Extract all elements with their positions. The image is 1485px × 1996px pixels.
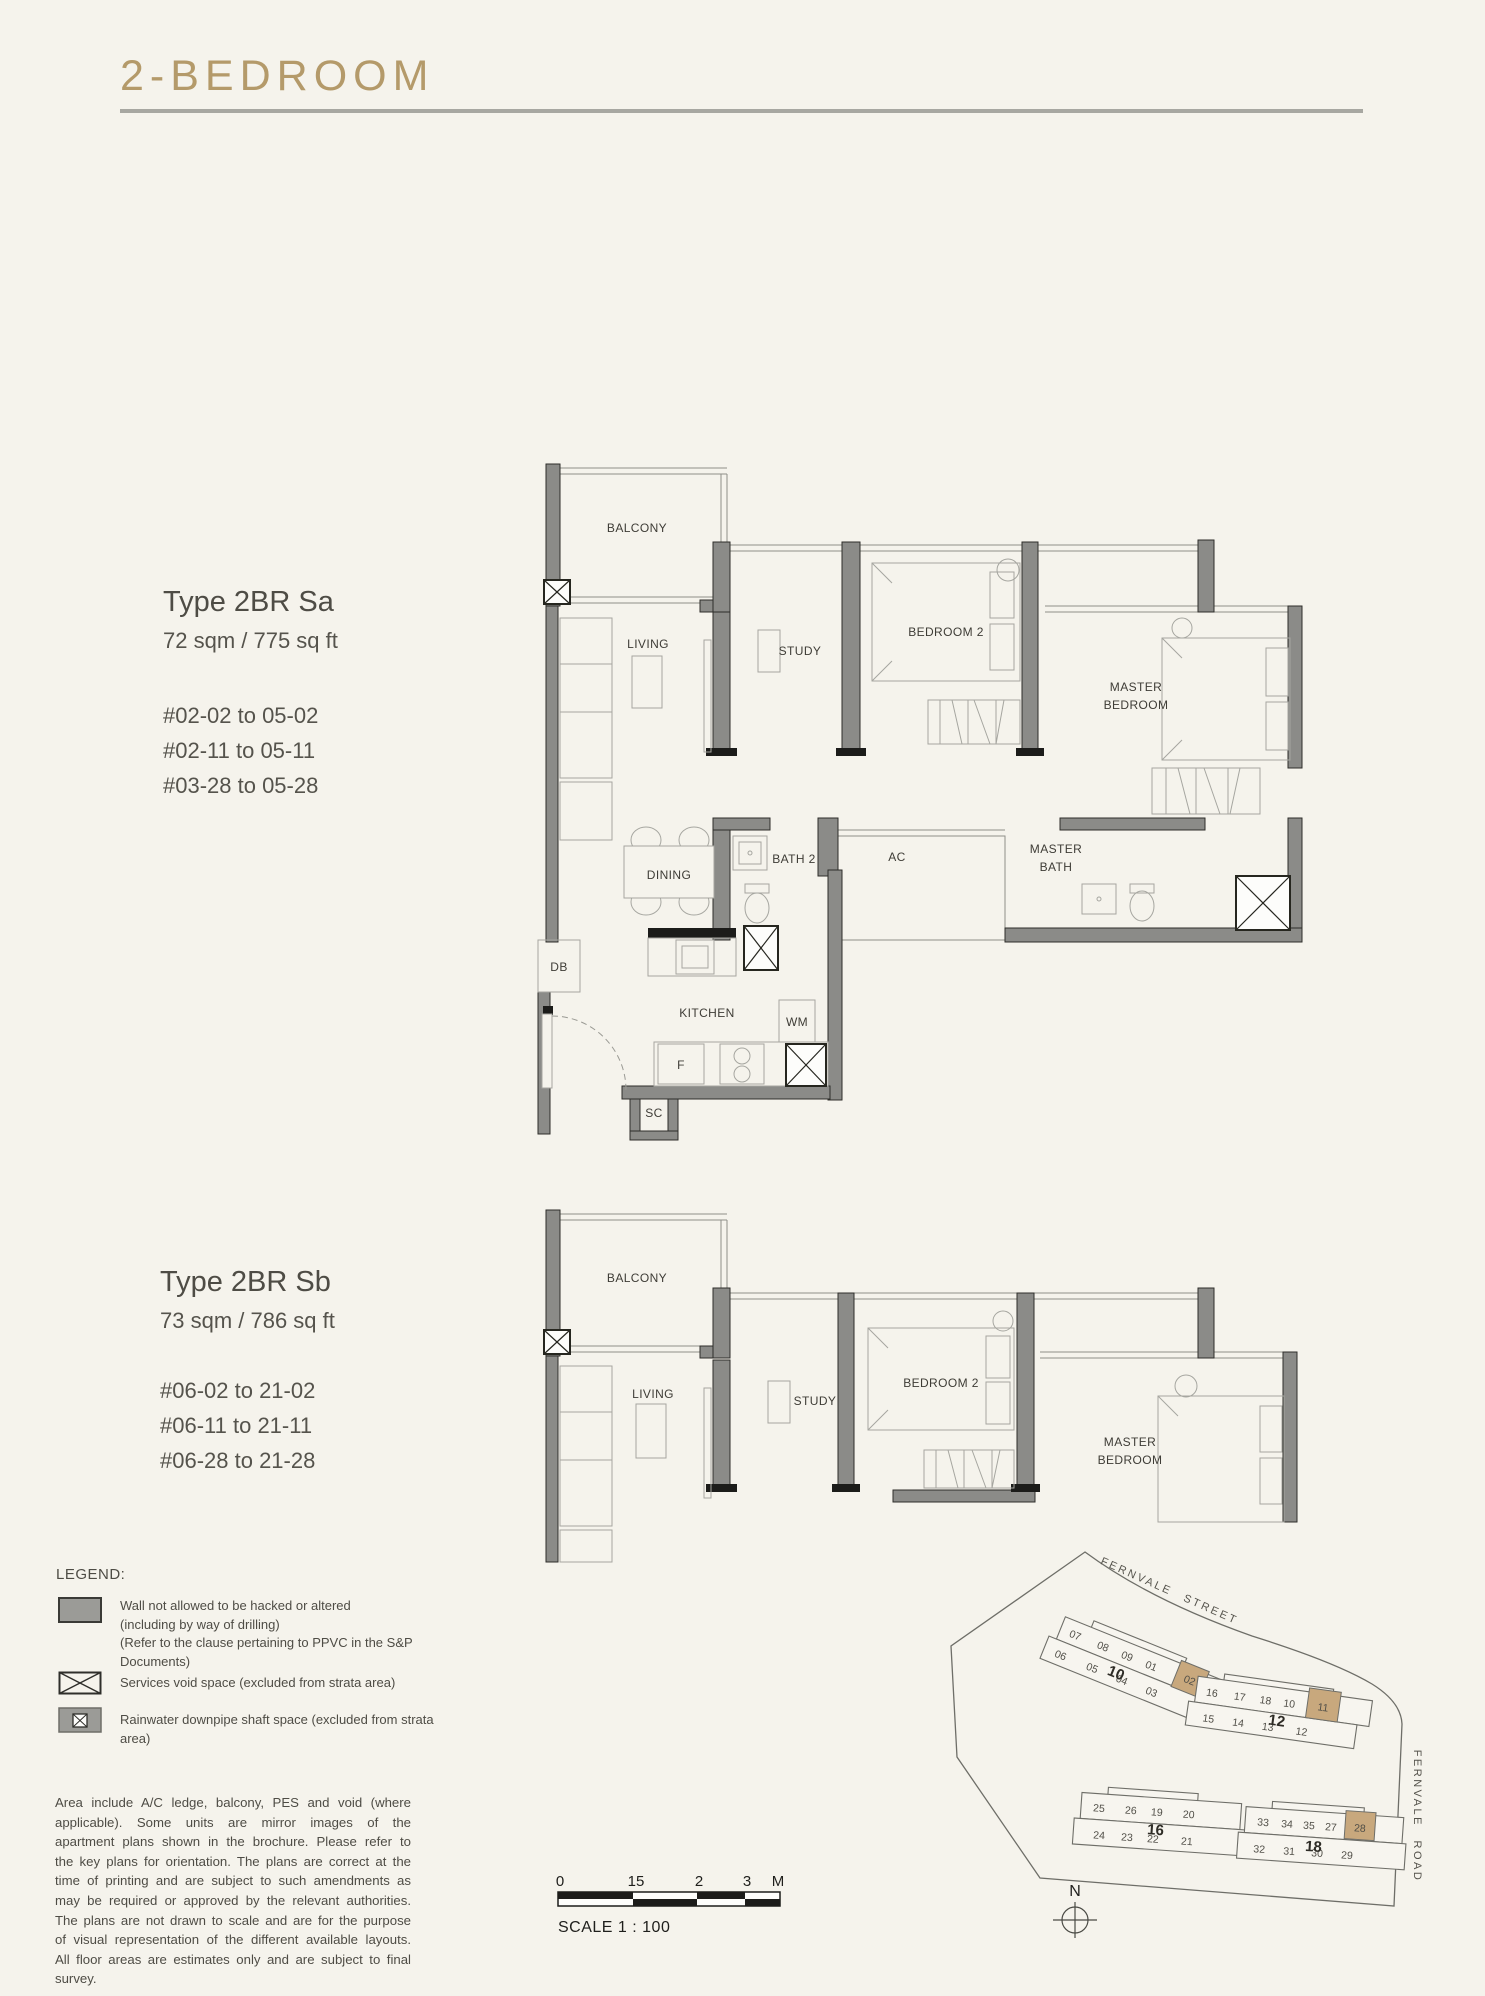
room-label-dining: DINING: [647, 868, 691, 882]
study-desk: [768, 1381, 790, 1423]
block-number: 16: [1147, 1821, 1165, 1839]
stack-number: 27: [1325, 1821, 1338, 1834]
site-block-18: 33 34 35 27 28 32 31 30 29 18: [1237, 1799, 1409, 1870]
room-label-study: STUDY: [794, 1394, 837, 1408]
stack-number: 29: [1341, 1849, 1354, 1862]
master-fan: [1172, 618, 1192, 638]
wall-swatch: [58, 1597, 104, 1623]
legend-heading: LEGEND:: [56, 1566, 125, 1583]
scale-bar: 0 15 2 3 M SCALE 1 : 100: [540, 1862, 800, 1942]
block-number: 12: [1267, 1712, 1286, 1731]
void-master-bath: [1236, 876, 1290, 930]
street-label: FERNVALE STREET: [1099, 1555, 1240, 1627]
bedroom2-wardrobe: [924, 1450, 1014, 1488]
title-rule: [120, 109, 1363, 113]
unit-range: #02-02 to 05-02: [163, 698, 318, 733]
type-sb-name: Type 2BR Sb: [160, 1266, 335, 1299]
plan-sb-furniture: [560, 1311, 1284, 1562]
floorplan-type-sb: BALCONY LIVING STUDY BEDROOM 2 MASTER BE…: [430, 1190, 1330, 1570]
room-label-master-bedroom: BEDROOM: [1104, 698, 1169, 712]
room-label-wm: WM: [786, 1015, 808, 1029]
legend-wall-line3: (Refer to the clause pertaining to PPVC …: [120, 1634, 458, 1671]
type-sb-info: Type 2BR Sb 73 sqm / 786 sq ft: [160, 1266, 335, 1334]
stack-number: 23: [1121, 1831, 1134, 1844]
bath2-fixtures: [733, 836, 769, 923]
stack-number: 28: [1354, 1822, 1367, 1835]
type-sa-area: 72 sqm / 775 sq ft: [163, 628, 338, 654]
void-kitchen-top: [744, 926, 778, 970]
stack-number: 19: [1151, 1806, 1164, 1819]
block-number: 18: [1305, 1838, 1323, 1856]
study-desk: [758, 630, 780, 672]
rainwater-swatch: [58, 1707, 104, 1738]
master-wardrobe: [1152, 768, 1260, 814]
coffee-table: [636, 1404, 666, 1458]
room-label-sc: SC: [645, 1106, 662, 1120]
scale-tick: 3: [743, 1873, 751, 1890]
room-label-ac: AC: [888, 850, 905, 864]
scale-tick: 2: [695, 1873, 703, 1890]
stack-number: 18: [1259, 1694, 1272, 1708]
unit-range: #06-28 to 21-28: [160, 1443, 315, 1478]
scale-unit: M: [772, 1873, 785, 1890]
coffee-table: [632, 656, 662, 708]
bedroom2-bed: [872, 563, 1020, 681]
master-bed: [1162, 638, 1290, 760]
north-label: N: [1069, 1883, 1081, 1900]
type-sb-area: 73 sqm / 786 sq ft: [160, 1308, 335, 1334]
legend-wall-line1: Wall not allowed to be hacked or altered: [120, 1597, 458, 1616]
site-block-12: 16 17 18 10 11 15 14 13 12 12: [1185, 1669, 1373, 1750]
plan-sa-walls: [538, 464, 1302, 1140]
stack-number: 11: [1317, 1701, 1330, 1714]
room-label-balcony: BALCONY: [607, 1271, 667, 1285]
floorplan-type-sa: BALCONY LIVING STUDY BEDROOM 2 MASTER BE…: [430, 440, 1330, 1150]
scale-ticks: 0 15 2 3 M: [556, 1873, 784, 1890]
type-sa-info: Type 2BR Sa 72 sqm / 775 sq ft: [163, 586, 338, 654]
stack-number: 16: [1205, 1687, 1218, 1701]
master-bath-fixtures: [1082, 884, 1154, 921]
room-label-kitchen: KITCHEN: [679, 1006, 734, 1020]
room-label-master-bedroom: BEDROOM: [1098, 1453, 1163, 1467]
unit-range: #06-11 to 21-11: [160, 1408, 315, 1443]
stack-number: 31: [1283, 1845, 1296, 1858]
stack-number: 26: [1125, 1805, 1138, 1818]
stack-number: 12: [1295, 1725, 1308, 1739]
room-label-master-bedroom: MASTER: [1110, 680, 1162, 694]
master-fan: [1175, 1375, 1197, 1397]
stack-number: 21: [1181, 1836, 1194, 1849]
room-label-master-bedroom: MASTER: [1104, 1435, 1156, 1449]
legend-rainwater-text: Rainwater downpipe shaft space (excluded…: [120, 1707, 458, 1748]
bedroom2-wardrobe: [928, 700, 1020, 744]
scale-label: SCALE 1 : 100: [558, 1919, 670, 1936]
stack-number: 35: [1303, 1820, 1316, 1833]
room-label-bath2: BATH 2: [772, 852, 816, 866]
gray-crossed-box-icon: [58, 1707, 102, 1733]
site-key-plan: FERNVALE STREET FERNVALE ROAD 07 08 09 0…: [930, 1548, 1485, 1993]
room-label-living: LIVING: [632, 1387, 674, 1401]
stack-number: 25: [1093, 1802, 1106, 1815]
plan-sb-windows: [546, 1214, 1296, 1520]
void-balcony: [544, 580, 570, 604]
type-sa-units: #02-02 to 05-02 #02-11 to 05-11 #03-28 t…: [163, 698, 318, 803]
stack-number: 20: [1182, 1809, 1195, 1822]
room-label-living: LIVING: [627, 637, 669, 651]
stack-number: 10: [1283, 1697, 1296, 1711]
type-sb-units: #06-02 to 21-02 #06-11 to 21-11 #06-28 t…: [160, 1373, 315, 1478]
room-label-db: DB: [550, 960, 567, 974]
scale-bar-graphic: [558, 1892, 780, 1906]
stack-number: 24: [1093, 1829, 1106, 1842]
stack-number: 14: [1231, 1717, 1244, 1731]
scale-tick: 15: [628, 1873, 645, 1890]
services-void-swatch: [58, 1671, 104, 1700]
master-bed: [1158, 1396, 1284, 1522]
brochure-page: 2-BEDROOM Type 2BR Sa 72 sqm / 775 sq ft…: [0, 0, 1485, 1996]
stack-number: 17: [1233, 1690, 1246, 1704]
plan-sb-service-voids: [544, 1330, 570, 1354]
unit-range: #03-28 to 05-28: [163, 768, 318, 803]
entry-door: [542, 1014, 626, 1090]
room-label-bedroom2: BEDROOM 2: [903, 1376, 979, 1390]
legend-wall-line2: (including by way of drilling): [120, 1616, 458, 1635]
stack-number: 33: [1257, 1816, 1270, 1829]
unit-range: #02-11 to 05-11: [163, 733, 318, 768]
page-title: 2-BEDROOM: [120, 52, 434, 101]
disclaimer-text: Area include A/C ledge, balcony, PES and…: [55, 1793, 411, 1989]
unit-range: #06-02 to 21-02: [160, 1373, 315, 1408]
stack-number: 32: [1253, 1843, 1266, 1856]
room-label-master-bath: BATH: [1040, 860, 1073, 874]
void-balcony: [544, 1330, 570, 1354]
tv-console: [704, 640, 711, 752]
room-label-fridge: F: [677, 1058, 685, 1072]
void-kitchen-bottom: [786, 1044, 826, 1086]
bedroom2-fan: [997, 559, 1019, 581]
room-label-balcony: BALCONY: [607, 521, 667, 535]
room-label-bedroom2: BEDROOM 2: [908, 625, 984, 639]
sofa: [560, 1366, 612, 1562]
legend-item-rainwater: Rainwater downpipe shaft space (excluded…: [58, 1707, 458, 1748]
stack-number: 34: [1281, 1818, 1294, 1831]
legend-item-wall: Wall not allowed to be hacked or altered…: [58, 1597, 458, 1671]
legend-services-void-text: Services void space (excluded from strat…: [120, 1671, 395, 1693]
site-block-16: 25 26 19 20 24 23 22 21 16: [1072, 1785, 1248, 1856]
room-label-master-bath: MASTER: [1030, 842, 1082, 856]
room-label-study: STUDY: [779, 644, 822, 658]
sofa: [560, 618, 612, 840]
road-label: FERNVALE ROAD: [1411, 1750, 1423, 1883]
type-sa-name: Type 2BR Sa: [163, 586, 338, 619]
crossed-box-icon: [58, 1671, 102, 1695]
scale-tick: 0: [556, 1873, 564, 1890]
plan-sb-room-labels: BALCONY LIVING STUDY BEDROOM 2 MASTER BE…: [607, 1271, 1162, 1467]
north-compass: N: [1053, 1883, 1097, 1938]
legend-item-services-void: Services void space (excluded from strat…: [58, 1671, 458, 1700]
stack-number: 15: [1202, 1712, 1215, 1726]
tv-console: [704, 1388, 711, 1498]
